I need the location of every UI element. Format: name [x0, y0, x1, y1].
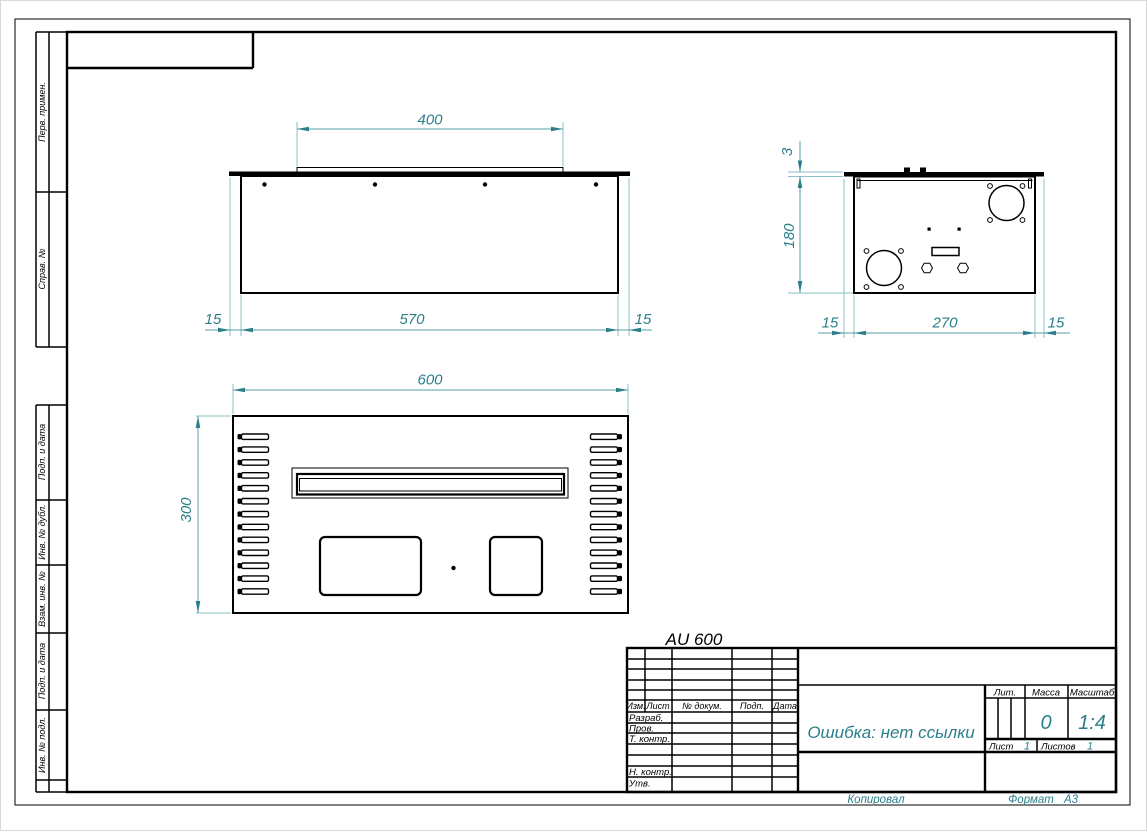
tb-col-dokum: № докум.	[682, 701, 722, 711]
side-body	[854, 177, 1035, 294]
tb-listov-value: 1	[1087, 741, 1093, 753]
vent-slot	[242, 524, 269, 529]
top-view	[233, 416, 628, 613]
vent-slot	[591, 499, 618, 504]
drawing-designation: AU 600	[665, 630, 723, 649]
vent-slot	[242, 447, 269, 452]
front-hole	[483, 182, 487, 186]
vent-slot	[591, 589, 618, 594]
dim-side-15-left: 15	[822, 315, 839, 332]
dim-front-400: 400	[417, 112, 443, 129]
vent-slot	[591, 511, 618, 516]
tb-row-razrab: Разраб.	[629, 713, 663, 724]
vent-slot	[591, 524, 618, 529]
vent-slot	[242, 576, 269, 581]
tb-name-value: Ошибка: нет ссылки	[807, 723, 975, 742]
vent-slot	[591, 473, 618, 478]
vent-slot	[242, 537, 269, 542]
tb-col-podp: Подп.	[740, 701, 764, 711]
vent-slot	[242, 434, 269, 439]
vent-slot	[618, 576, 623, 581]
vent-slot	[618, 460, 623, 465]
tb-col-list: Лист	[645, 701, 670, 711]
tb-list-value: 1	[1024, 741, 1030, 753]
tb-listov-label: Листов	[1040, 742, 1076, 753]
tb-massa-value: 0	[1040, 712, 1051, 734]
tb-row-prov: Пров.	[629, 724, 654, 735]
margin-label-inv-podl: Инв. № подл.	[37, 717, 47, 773]
side-view	[844, 168, 1044, 294]
vent-slot	[242, 460, 269, 465]
margin-label-podp-data-2: Подп. и дата	[37, 643, 47, 699]
dim-top-600: 600	[417, 372, 443, 389]
dim-front-15-right: 15	[635, 311, 652, 328]
front-body	[241, 176, 618, 293]
top-hole	[451, 566, 455, 570]
footer-format-label: Формат	[1008, 794, 1054, 806]
vent-slot	[618, 589, 623, 594]
vent-slot	[591, 447, 618, 452]
drawing-page: Перв. примен. Справ. № Подп. и дата Инв.…	[0, 0, 1147, 831]
dim-front-15-left: 15	[205, 311, 222, 328]
tb-lit-label: Лит.	[993, 688, 1016, 699]
vent-slot	[618, 563, 623, 568]
footer: Копировал Формат A3	[847, 794, 1078, 806]
dim-side-15-right: 15	[1048, 315, 1065, 332]
vent-slot	[242, 486, 269, 491]
footer-format-value: A3	[1063, 794, 1079, 806]
front-view	[229, 168, 630, 294]
front-top-strip	[297, 168, 563, 173]
vent-slot	[242, 563, 269, 568]
vent-slot	[618, 486, 623, 491]
tb-masshtab-label: Масштаб	[1070, 688, 1115, 699]
vent-slot	[591, 460, 618, 465]
dim-front-570: 570	[399, 311, 425, 328]
side-small-hole	[958, 228, 961, 231]
vent-slot	[591, 434, 618, 439]
side-top-notch	[904, 168, 910, 173]
tb-row-utv: Утв.	[628, 779, 651, 790]
vent-slot	[591, 550, 618, 555]
cad-drawing-canvas: Перв. примен. Справ. № Подп. и дата Инв.…	[0, 0, 1147, 831]
margin-label-perv-primen: Перв. примен.	[37, 82, 47, 142]
inner-frame	[67, 32, 1116, 792]
footer-kopiroval: Копировал	[847, 794, 905, 806]
vent-slot	[618, 524, 623, 529]
vent-slot	[591, 563, 618, 568]
side-small-hole	[928, 228, 931, 231]
vent-slot	[242, 589, 269, 594]
left-margin-column: Перв. примен. Справ. № Подп. и дата Инв.…	[36, 32, 67, 792]
vent-slot	[591, 537, 618, 542]
top-body	[233, 416, 628, 613]
vent-slot	[242, 550, 269, 555]
margin-label-podp-data-1: Подп. и дата	[37, 424, 47, 480]
outer-border	[15, 19, 1130, 805]
vent-slot	[618, 499, 623, 504]
tb-list-label: Лист	[988, 742, 1014, 753]
tb-col-izm: Изм.	[626, 701, 645, 711]
tb-masshtab-value: 1:4	[1078, 712, 1106, 734]
title-block: Изм. Лист № докум. Подп. Дата Разраб. Пр…	[626, 648, 1116, 792]
vent-slot	[242, 511, 269, 516]
margin-label-inv-dubl: Инв. № дубл.	[37, 504, 47, 559]
front-hole	[373, 182, 377, 186]
tb-col-data: Дата	[772, 701, 797, 711]
dim-side-3: 3	[779, 147, 796, 156]
vent-slot	[242, 499, 269, 504]
vent-slot	[591, 576, 618, 581]
dim-top-300: 300	[178, 497, 195, 523]
vent-slot	[618, 447, 623, 452]
dim-side-270: 270	[931, 315, 958, 332]
side-top-notch	[920, 168, 926, 173]
vent-slot	[591, 486, 618, 491]
vent-slot	[618, 434, 623, 439]
vent-slot	[242, 473, 269, 478]
vent-slot	[618, 473, 623, 478]
margin-label-sprav-no: Справ. №	[37, 248, 47, 289]
vent-slot	[618, 511, 623, 516]
front-hole	[594, 182, 598, 186]
vent-slot	[618, 537, 623, 542]
front-hole	[262, 182, 266, 186]
tb-row-nkontr: Н. контр.	[629, 767, 672, 778]
vent-slot	[618, 550, 623, 555]
dim-side-180: 180	[781, 223, 798, 249]
tb-massa-label: Масса	[1032, 688, 1060, 699]
tb-row-tkontr: Т. контр.	[629, 734, 670, 745]
margin-label-vzam-inv: Взам. инв. №	[37, 571, 47, 627]
